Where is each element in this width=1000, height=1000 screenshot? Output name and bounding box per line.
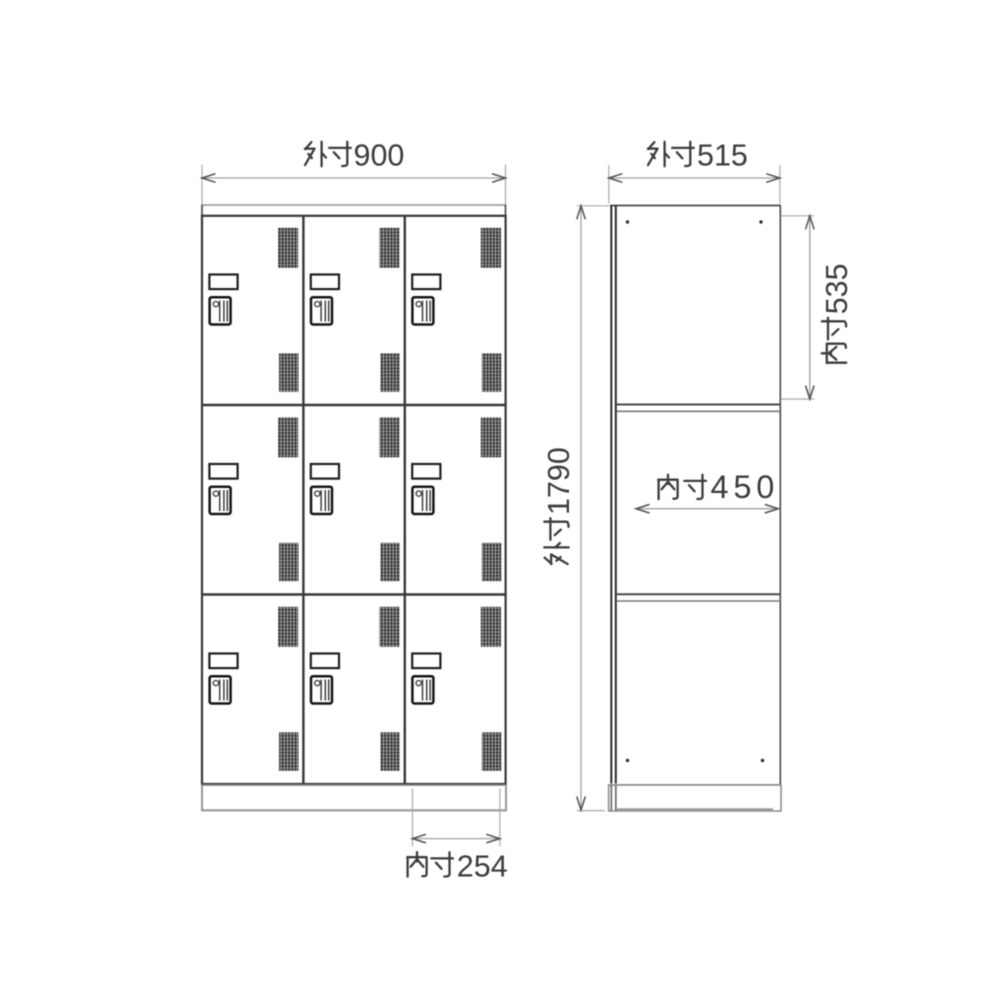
svg-text:450: 450	[711, 469, 780, 505]
svg-text:515: 515	[697, 138, 748, 172]
svg-text:535: 535	[820, 263, 854, 314]
svg-text:1790: 1790	[542, 447, 576, 515]
svg-text:254: 254	[457, 850, 508, 884]
svg-text:900: 900	[354, 138, 405, 172]
